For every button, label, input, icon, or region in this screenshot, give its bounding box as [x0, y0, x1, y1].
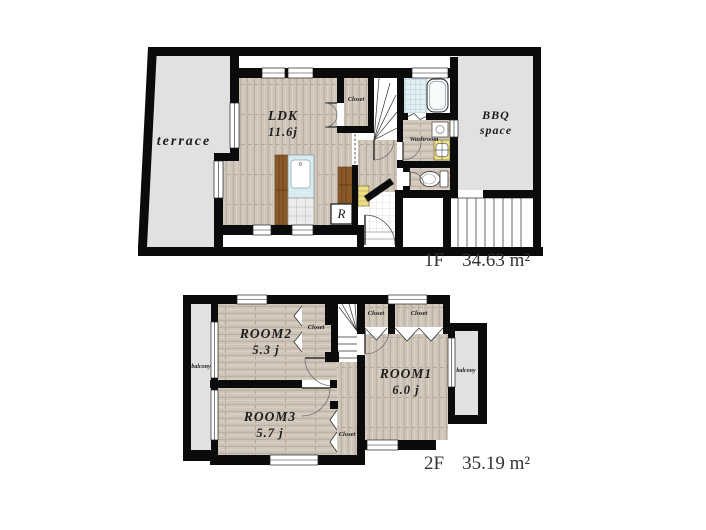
floor2-area: 35.19 m²: [462, 453, 530, 474]
bath-floor: [404, 78, 427, 113]
room1-name: ROOM1: [364, 366, 448, 383]
balcony-left-label: balcony: [184, 364, 218, 370]
room1-label: ROOM1 6.0 j: [364, 366, 448, 399]
room3-size: 5.7 j: [228, 426, 312, 442]
floor1-area: 34.63 m²: [462, 250, 530, 271]
room2-name: ROOM2: [224, 326, 308, 343]
bbq-line1: BBQ: [466, 108, 526, 123]
cabinet-icon: [338, 167, 352, 203]
room2-size: 5.3 j: [224, 343, 308, 359]
room1-size: 6.0 j: [364, 383, 448, 399]
room3-label: ROOM3 5.7 j: [228, 409, 312, 442]
floor2-area-caption: 2F35.19 m²: [424, 453, 530, 475]
closet-top-right-label: Closet: [404, 311, 434, 318]
balcony-left-floor: [191, 304, 211, 450]
ldk-label: LDK 11.6j: [243, 108, 323, 141]
floorplan-page: terrace LDK 11.6j Closet Washroom BBQ sp…: [0, 0, 706, 530]
kitchen-unit: [275, 155, 314, 225]
bbq-label: BBQ space: [466, 108, 526, 138]
hall-2f-floor: [337, 362, 357, 407]
refrigerator-label: R: [331, 204, 352, 224]
washing-machine-icon: [432, 122, 448, 137]
bath-folding-door: [408, 113, 426, 120]
ldk-size: 11.6j: [243, 125, 323, 141]
floor1-area-caption: 1F34.63 m²: [424, 250, 530, 272]
bbq-line2: space: [466, 123, 526, 138]
closet-room3-label: Closet: [331, 432, 363, 439]
sliding-door: [352, 133, 358, 165]
room3-name: ROOM3: [228, 409, 312, 426]
bath-tub-icon: [427, 79, 448, 112]
balcony-right-label: balcony: [449, 368, 483, 374]
exterior-stairs: [451, 198, 533, 247]
floor1-name: 1F: [424, 250, 444, 271]
stairs-2f: [338, 304, 357, 362]
closet-top-left-label: Closet: [361, 311, 391, 318]
room2-label: ROOM2 5.3 j: [224, 326, 308, 359]
floor2-name: 2F: [424, 453, 444, 474]
closet-room2-label: Closet: [301, 325, 331, 332]
ldk-name: LDK: [243, 108, 323, 125]
washroom-label: Washroom: [402, 137, 446, 144]
terrace-label: terrace: [140, 133, 228, 151]
closet-1f-label: Closet: [338, 97, 374, 104]
